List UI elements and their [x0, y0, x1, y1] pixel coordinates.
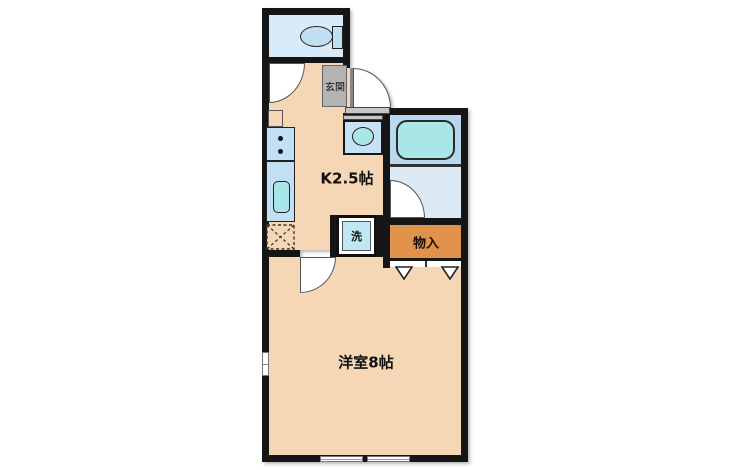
entrance-step — [345, 107, 390, 114]
wall-toilet-top — [262, 8, 350, 15]
washing-machine-box: 洗 — [336, 215, 377, 257]
kitchen-label: K2.5帖 — [320, 168, 373, 189]
kitchen-counter-end — [268, 110, 283, 127]
washer-label: 洗 — [351, 228, 362, 244]
window-bottom-left-icon — [320, 456, 363, 462]
bathroom-divider-line — [390, 164, 461, 167]
wall-kitchen-room-left — [262, 250, 300, 257]
window-bottom-right-icon — [367, 456, 410, 462]
window-divider — [321, 459, 362, 460]
wall-bottom — [262, 455, 468, 462]
window-divider — [263, 364, 268, 365]
wall-right — [461, 108, 468, 462]
bathtub-icon — [396, 120, 455, 160]
closet-door-mark-icon — [440, 266, 460, 280]
washbasin-icon — [343, 120, 383, 155]
window-left-icon — [262, 352, 269, 376]
burner-dot-icon — [278, 149, 283, 154]
wall-bath-left — [383, 108, 390, 268]
wall-bath-top — [383, 108, 468, 115]
entrance-label: 玄関 — [325, 79, 345, 94]
floorplan-canvas: 洗 K2.5帖 洋室8帖 物入 玄関 — [0, 0, 730, 470]
window-divider — [368, 459, 409, 460]
storage-label: 物入 — [413, 233, 439, 252]
floorplan: 洗 K2.5帖 洋室8帖 物入 玄関 — [0, 0, 730, 470]
wall-washer-right-stub — [377, 215, 383, 257]
western-room-label: 洋室8帖 — [338, 352, 393, 373]
burner-dot-icon — [278, 136, 283, 141]
washbasin-bowl-icon — [352, 127, 374, 146]
stove-icon — [266, 127, 295, 161]
wall-bath-storage-divider — [383, 218, 468, 225]
closet-door-mark-icon — [394, 266, 414, 280]
washing-machine-inner: 洗 — [342, 221, 371, 251]
closet-center-tick — [425, 261, 427, 267]
kitchen-sink-icon — [273, 181, 290, 213]
fridge-space-icon — [266, 224, 295, 250]
wall-toilet-bottom — [262, 57, 350, 63]
toilet-tank-icon — [332, 26, 343, 49]
entrance-door-arc-icon — [353, 68, 391, 108]
kitchen-sink-unit — [266, 161, 295, 222]
toilet-bowl-icon — [300, 26, 333, 47]
